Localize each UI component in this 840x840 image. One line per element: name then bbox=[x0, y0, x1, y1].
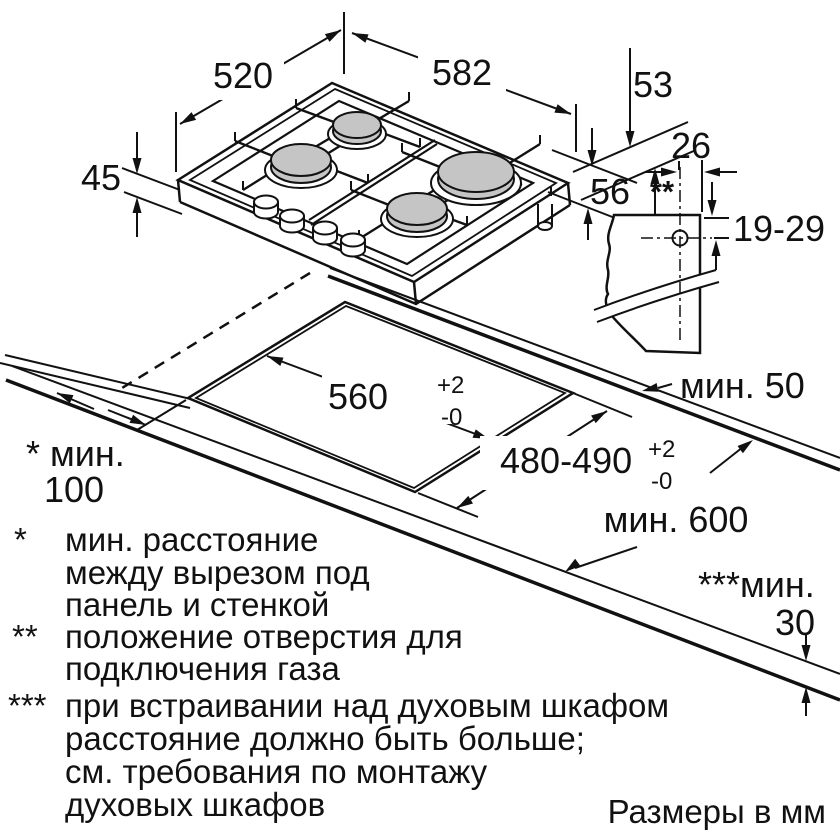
dim-520-arrow-right bbox=[325, 30, 341, 42]
gas-note-marker: ** bbox=[650, 174, 675, 209]
dim-582-arrow-right bbox=[554, 104, 571, 114]
dim-min30-arrow-down bbox=[802, 645, 811, 661]
dim-gas-range-label: 19-29 bbox=[733, 208, 825, 249]
footnote-marker-1: * bbox=[14, 521, 27, 558]
burner-right bbox=[431, 152, 521, 205]
dim-width-label: 582 bbox=[432, 52, 492, 93]
knob bbox=[280, 210, 304, 233]
dim-45-arrow-up bbox=[133, 197, 142, 213]
footnote-3-line-4: духовых шкафов bbox=[65, 786, 325, 823]
dim-min600-line-down bbox=[575, 547, 637, 568]
dim-26-ext-lines bbox=[679, 160, 702, 212]
installation-diagram: 560 +2 -0 480-490 +2 -0 мин. 50 мин. 600… bbox=[0, 0, 840, 840]
knob bbox=[254, 196, 278, 219]
dim-min-oven-value: 30 bbox=[775, 602, 815, 643]
dim-min-back-label: мин. 50 bbox=[680, 365, 805, 406]
hob-body-corner-front bbox=[414, 282, 416, 304]
hob-isometric-view bbox=[178, 83, 570, 304]
burner-cap bbox=[271, 144, 331, 176]
dim-520-arrow-left bbox=[180, 112, 196, 124]
dim-min-side-prefix: * мин. bbox=[26, 433, 125, 474]
hob-body-corner-left bbox=[178, 180, 180, 202]
dim-480-arrow-bottom bbox=[457, 496, 473, 508]
dim-26-arrow-left bbox=[704, 168, 720, 177]
units-note: Размеры в мм bbox=[608, 793, 826, 830]
dim-1929-arrow-lines bbox=[712, 182, 716, 270]
dim-min600-arrow-down bbox=[565, 559, 581, 572]
cutout-ext-bottom bbox=[418, 493, 478, 517]
dim-min-depth-label: мин. 600 bbox=[604, 499, 749, 540]
dim-edge-height-label: 53 bbox=[633, 64, 673, 105]
dim-480-arrow-top bbox=[591, 411, 607, 423]
burner-cap bbox=[438, 152, 514, 192]
burner-left bbox=[265, 144, 337, 188]
dim-cutout-depth-label: 480-490 bbox=[500, 440, 632, 481]
dim-cutout-width-tol-plus: +2 bbox=[437, 372, 464, 399]
dim-1929-arrow-up bbox=[712, 240, 721, 256]
footnote-2-line-2: подключения газа bbox=[65, 650, 341, 687]
footnote-3-line-3: см. требования по монтажу bbox=[65, 753, 488, 790]
dim-53-arrow-down bbox=[626, 131, 635, 147]
dim-min-side-value: 100 bbox=[44, 469, 104, 510]
dim-depth-label: 520 bbox=[213, 55, 273, 96]
burner-cap bbox=[387, 193, 447, 225]
hob-leg-foot bbox=[538, 222, 552, 230]
dim-height-right-label: 56 bbox=[590, 171, 630, 212]
dim-cutout-depth-tol-plus: +2 bbox=[648, 436, 675, 463]
dim-min50-leader bbox=[658, 384, 672, 388]
burner-back bbox=[328, 112, 386, 149]
dim-582-arrow-left bbox=[352, 33, 369, 43]
footnote-marker-2: ** bbox=[12, 618, 38, 655]
dim-cutout-width-label: 560 bbox=[328, 376, 388, 417]
dim-1929-ext-lines bbox=[704, 218, 729, 238]
dim-cutout-width-tol-minus: -0 bbox=[441, 404, 462, 431]
footnote-marker-3: *** bbox=[8, 687, 47, 724]
dim-45-ext-lines bbox=[122, 168, 182, 214]
wall-edge-line2 bbox=[0, 363, 190, 408]
dim-1929-arrow-down bbox=[708, 200, 717, 216]
burner-cap bbox=[333, 112, 381, 138]
wall-edge-line bbox=[5, 355, 195, 400]
knob bbox=[341, 234, 365, 257]
footnote-3-line-2: расстояние должно быть больше; bbox=[65, 720, 585, 757]
dim-cutout-depth-tol-minus: -0 bbox=[651, 468, 672, 495]
dim-min600-line-up bbox=[710, 447, 743, 473]
dim-gas-offset-label: 26 bbox=[671, 125, 711, 166]
dim-height-left-label: 45 bbox=[81, 157, 121, 198]
footnote-1-line-1: мин. расстояние bbox=[65, 521, 318, 558]
burner-front bbox=[381, 193, 453, 237]
hob-body-corner-right bbox=[568, 183, 570, 205]
diagram-canvas: 560 +2 -0 480-490 +2 -0 мин. 50 мин. 600… bbox=[0, 0, 840, 840]
knob bbox=[313, 222, 337, 245]
dim-min-oven-prefix: ***мин. bbox=[698, 564, 815, 605]
dim-min100-arrow-b bbox=[130, 415, 147, 425]
footnote-3-line-1: при встраивании над духовым шкафом bbox=[65, 687, 669, 724]
dim-min600-arrow-up bbox=[738, 440, 754, 453]
